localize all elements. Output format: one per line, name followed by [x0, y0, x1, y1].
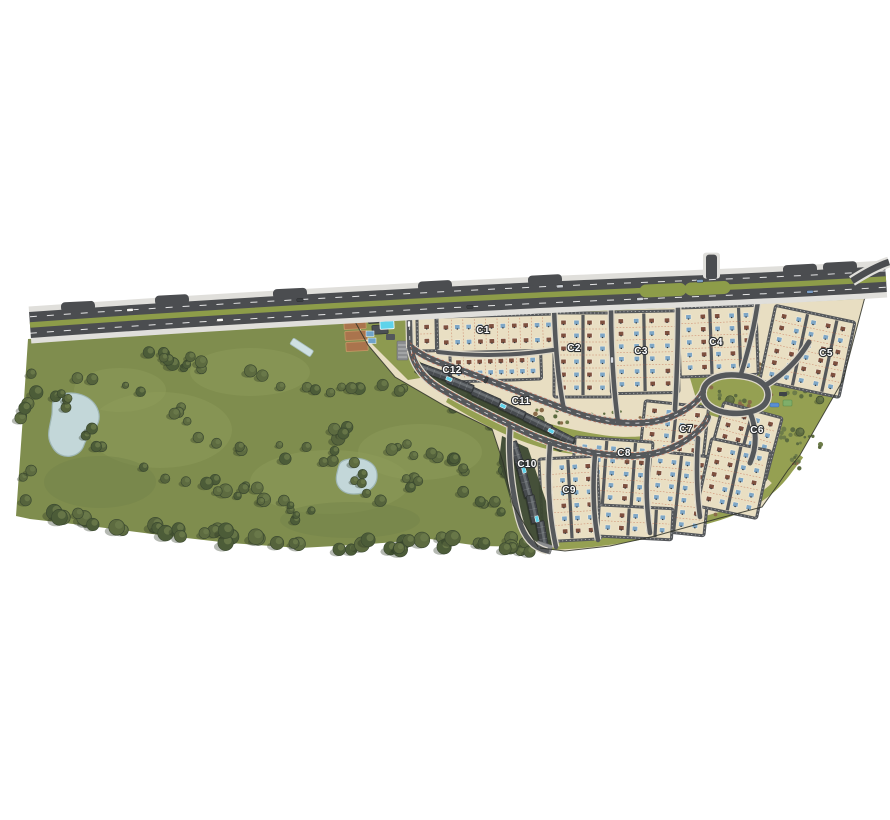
house-door	[589, 376, 590, 377]
house-door	[683, 501, 685, 502]
house-door	[636, 322, 637, 323]
tree-highlight	[60, 390, 64, 394]
layby-bump	[155, 294, 189, 306]
tree-highlight	[296, 512, 299, 515]
tree-highlight	[254, 530, 262, 538]
house-door	[700, 466, 702, 467]
house-door	[589, 337, 590, 338]
shrub	[539, 408, 544, 413]
house-door	[589, 350, 590, 351]
house-door	[634, 530, 635, 531]
shrub	[734, 394, 737, 397]
house-door	[426, 328, 427, 329]
tree-highlight	[249, 366, 255, 372]
house-door	[621, 517, 622, 518]
house-door	[525, 327, 526, 328]
house-door	[589, 324, 590, 325]
tree-highlight	[398, 387, 403, 392]
house-door	[576, 389, 577, 390]
shrub	[553, 414, 557, 418]
cluster-label-c7[interactable]: C7	[679, 424, 693, 435]
cluster-label-c12[interactable]: C12	[442, 365, 461, 376]
tree-highlight	[280, 383, 284, 387]
house-door	[620, 335, 621, 336]
house-door	[468, 363, 469, 364]
tree-highlight	[243, 484, 248, 489]
house-door	[694, 527, 696, 528]
house-door	[689, 356, 690, 357]
house-door	[684, 489, 686, 490]
tree-highlight	[729, 396, 733, 400]
house-door	[576, 494, 577, 495]
tree-highlight	[346, 422, 352, 428]
car	[611, 357, 614, 363]
house-door	[588, 480, 589, 481]
tree-highlight	[338, 544, 344, 550]
house-door	[602, 389, 603, 390]
house-door	[690, 369, 691, 370]
tree-highlight	[451, 532, 459, 540]
house-door	[491, 328, 492, 329]
tree-highlight	[143, 464, 147, 468]
house-door	[621, 360, 622, 361]
house-door	[638, 501, 639, 502]
house-door	[576, 324, 577, 325]
house-door	[590, 519, 591, 520]
house-door	[620, 323, 621, 324]
house-door	[718, 368, 719, 369]
house-door	[704, 368, 705, 369]
house-door	[717, 317, 718, 318]
tree-highlight	[350, 384, 356, 390]
tree-highlight	[406, 441, 410, 445]
house-door	[576, 506, 577, 507]
cluster-label-c5[interactable]: C5	[819, 348, 833, 359]
tree-highlight	[76, 374, 81, 379]
tree-highlight	[453, 454, 458, 459]
house-door	[667, 372, 668, 373]
house-door	[563, 324, 564, 325]
house-door	[621, 386, 622, 387]
house-door	[689, 344, 690, 345]
cluster-label-c11[interactable]: C11	[512, 396, 531, 407]
car	[467, 305, 474, 308]
cluster-label-c1[interactable]: C1	[476, 325, 490, 336]
tree-highlight	[314, 386, 319, 391]
house-door	[514, 342, 515, 343]
tree-highlight	[224, 524, 232, 532]
shrub	[793, 456, 796, 459]
house-door	[635, 517, 636, 518]
grass-patch	[280, 502, 420, 538]
house-door	[602, 363, 603, 364]
house-door	[590, 531, 591, 532]
house-door	[479, 363, 480, 364]
tree-highlight	[35, 387, 42, 394]
house-door	[445, 329, 446, 330]
house-door	[514, 327, 515, 328]
tree-highlight	[260, 498, 264, 502]
house-door	[652, 385, 653, 386]
house-door	[468, 343, 469, 344]
house-door	[746, 329, 747, 330]
tree-highlight	[164, 475, 169, 480]
house-door	[490, 363, 491, 364]
house-door	[561, 469, 562, 470]
tree-highlight	[366, 490, 370, 494]
house-door	[652, 360, 653, 361]
median-island	[691, 288, 724, 290]
house-door	[564, 520, 565, 521]
house-door	[651, 335, 652, 336]
house-door	[687, 465, 689, 466]
shrub	[742, 398, 747, 403]
tree-highlight	[341, 384, 345, 388]
house-door	[667, 385, 668, 386]
shrub	[709, 385, 713, 389]
shrub	[718, 397, 721, 400]
layby-bump	[528, 274, 562, 286]
tree-highlight	[256, 483, 262, 489]
house-door	[667, 334, 668, 335]
tree-highlight	[239, 443, 244, 448]
house-door	[703, 343, 704, 344]
shrub	[799, 442, 802, 445]
layby-bump	[418, 280, 452, 292]
house-door	[532, 361, 533, 362]
mini-court	[783, 400, 792, 406]
tree-highlight	[417, 477, 422, 482]
tree-highlight	[276, 538, 283, 545]
house-door	[576, 363, 577, 364]
tree-highlight	[462, 465, 467, 470]
house-door	[673, 464, 675, 465]
car	[408, 321, 411, 327]
tree-highlight	[331, 456, 337, 462]
shrub	[718, 390, 721, 393]
house-door	[624, 500, 625, 501]
house-door	[667, 347, 668, 348]
sports-court	[345, 330, 367, 340]
amenity-pool	[380, 321, 394, 330]
tree-highlight	[462, 487, 468, 493]
tree-highlight	[293, 539, 298, 544]
tree-highlight	[140, 388, 145, 393]
house-door	[587, 467, 588, 468]
house-door	[639, 488, 640, 489]
house-door	[511, 362, 512, 363]
tree-highlight	[237, 493, 241, 497]
house-door	[732, 355, 733, 356]
tree-highlight	[799, 429, 803, 433]
shrub	[639, 416, 642, 419]
house-door	[672, 476, 674, 477]
block-street	[739, 308, 741, 373]
house-door	[609, 499, 610, 500]
tree-highlight	[279, 442, 282, 445]
house-door	[731, 330, 732, 331]
house-door	[636, 360, 637, 361]
house-door	[621, 348, 622, 349]
block-parcel	[437, 314, 558, 353]
house-door	[661, 531, 662, 532]
house-door	[667, 360, 668, 361]
house-door	[651, 322, 652, 323]
house-door	[680, 526, 682, 527]
housing-block	[437, 314, 558, 353]
tree-highlight	[91, 519, 97, 525]
tree-highlight	[511, 543, 516, 548]
house-door	[665, 437, 667, 438]
house-door	[640, 476, 641, 477]
tree-highlight	[189, 353, 194, 358]
shrub	[797, 466, 801, 470]
house-door	[602, 337, 603, 338]
cluster-label-c10[interactable]: C10	[517, 459, 536, 470]
house-door	[610, 486, 611, 487]
tree-highlight	[261, 371, 267, 377]
shrub	[560, 421, 563, 424]
cluster-label-c4[interactable]: C4	[709, 337, 723, 348]
house-door	[670, 488, 672, 489]
tree-highlight	[367, 534, 374, 541]
tree-highlight	[162, 348, 167, 353]
house-door	[532, 372, 533, 373]
house-door	[562, 482, 563, 483]
house-door	[501, 373, 502, 374]
house-door	[521, 361, 522, 362]
tree-highlight	[91, 375, 97, 381]
tree-highlight	[185, 478, 190, 483]
house-door	[659, 462, 661, 463]
clubhouse-building	[386, 334, 395, 340]
shrub	[799, 394, 803, 398]
shrub	[785, 438, 789, 442]
tree-highlight	[354, 477, 358, 481]
tree-highlight	[500, 508, 504, 512]
car	[637, 297, 644, 300]
housing-block	[417, 317, 437, 351]
tree-highlight	[398, 544, 404, 550]
house-door	[548, 326, 549, 327]
tree-highlight	[483, 539, 489, 545]
house-door	[669, 500, 671, 501]
house-door	[602, 324, 603, 325]
tree-highlight	[173, 409, 179, 415]
tree-highlight	[353, 458, 358, 463]
tree-highlight	[323, 458, 328, 463]
shrub	[533, 412, 538, 417]
house-door	[654, 412, 656, 413]
tree-highlight	[430, 449, 436, 455]
shrub	[603, 412, 605, 414]
tree-highlight	[30, 370, 35, 375]
house-door	[717, 330, 718, 331]
house-door	[685, 477, 687, 478]
house-door	[522, 372, 523, 373]
tree-highlight	[361, 479, 366, 484]
shrub	[714, 513, 718, 517]
cluster-label-c2[interactable]: C2	[567, 343, 581, 354]
house-door	[655, 499, 657, 500]
tree-highlight	[504, 544, 510, 550]
house-door	[588, 493, 589, 494]
house-door	[536, 326, 537, 327]
house-door	[589, 389, 590, 390]
cluster-label-c3[interactable]: C3	[634, 346, 648, 357]
tree-highlight	[77, 509, 82, 514]
ramp-stub	[706, 255, 717, 280]
house-door	[636, 373, 637, 374]
house-door	[602, 350, 603, 351]
shrub	[788, 433, 792, 437]
tree-highlight	[311, 507, 315, 511]
shrub	[780, 431, 784, 435]
tree-highlight	[407, 536, 413, 542]
house-door	[565, 533, 566, 534]
house-door	[666, 322, 667, 323]
house-door	[732, 342, 733, 343]
tree-highlight	[30, 466, 35, 471]
house-door	[745, 316, 746, 317]
shrub	[818, 445, 822, 449]
car	[697, 279, 704, 282]
shrub	[792, 390, 797, 395]
paddle-court	[368, 338, 376, 344]
tree-highlight	[58, 511, 66, 519]
house-door	[468, 328, 469, 329]
house-door	[577, 519, 578, 520]
tree-highlight	[479, 497, 484, 502]
shrub	[779, 435, 783, 439]
shrub	[809, 394, 812, 397]
house-door	[640, 464, 641, 465]
car	[807, 290, 814, 293]
house-door	[624, 487, 625, 488]
tree-highlight	[24, 403, 30, 409]
shrub	[796, 442, 799, 445]
house-door	[637, 385, 638, 386]
car	[127, 308, 134, 311]
house-door	[612, 462, 613, 463]
house-door	[502, 327, 503, 328]
tree-highlight	[125, 383, 128, 386]
house-door	[662, 519, 663, 520]
house-door	[491, 343, 492, 344]
tree-highlight	[95, 442, 100, 447]
house-door	[652, 372, 653, 373]
median-island	[646, 290, 680, 292]
tree-highlight	[115, 521, 123, 529]
tree-highlight	[306, 443, 311, 448]
tree-highlight	[284, 454, 290, 460]
car	[557, 285, 564, 288]
house-door	[563, 350, 564, 351]
tree-highlight	[333, 424, 339, 430]
house-door	[589, 363, 590, 364]
house-door	[563, 337, 564, 338]
tree-highlight	[179, 531, 185, 537]
house-door	[682, 514, 684, 515]
shed	[779, 392, 787, 396]
house-door	[702, 318, 703, 319]
tree-highlight	[306, 383, 311, 388]
tree-highlight	[413, 452, 417, 456]
layby-bump	[783, 264, 817, 276]
cluster-label-c8[interactable]: C8	[617, 448, 631, 459]
house-door	[602, 376, 603, 377]
sports-court	[346, 341, 368, 351]
shrub	[565, 420, 569, 424]
house-door	[457, 328, 458, 329]
layby-bump	[61, 301, 95, 313]
house-door	[667, 425, 669, 426]
tree-highlight	[214, 475, 219, 480]
masterplan-canvas: C1 C2 C3 C4 C5 C6 C7 C8 C9 C10 C11 C12	[0, 0, 890, 820]
house-door	[731, 317, 732, 318]
house-door	[747, 367, 748, 368]
house-door	[589, 506, 590, 507]
tree-highlight	[215, 439, 220, 444]
tree-highlight	[494, 497, 499, 502]
tree-highlight	[819, 397, 823, 401]
house-door	[626, 463, 627, 464]
house-door	[500, 362, 501, 363]
cluster-label-c6[interactable]: C6	[750, 425, 764, 436]
house-door	[688, 331, 689, 332]
house-door	[457, 343, 458, 344]
layby-bump	[273, 288, 307, 300]
house-door	[490, 374, 491, 375]
tree-highlight	[379, 496, 385, 502]
tree-highlight	[391, 445, 397, 451]
shrub	[718, 393, 722, 397]
house-door	[576, 376, 577, 377]
tree-highlight	[67, 395, 71, 399]
tree-highlight	[197, 433, 202, 438]
house-door	[537, 341, 538, 342]
car	[297, 298, 304, 301]
house-door	[608, 516, 609, 517]
cluster-label-c9[interactable]: C9	[562, 485, 576, 496]
bus-icon	[770, 403, 779, 407]
house-door	[611, 474, 612, 475]
tree-highlight	[420, 534, 428, 542]
tree-highlight	[510, 533, 517, 540]
tree-highlight	[334, 447, 339, 452]
housing-block	[697, 438, 770, 518]
grass-patch	[44, 456, 156, 508]
tree-highlight	[217, 487, 222, 492]
tree-highlight	[91, 424, 97, 430]
house-door	[607, 529, 608, 530]
house-door	[480, 343, 481, 344]
tree-highlight	[177, 524, 184, 531]
tree-highlight	[342, 429, 348, 435]
house-door	[625, 475, 626, 476]
house-door	[703, 331, 704, 332]
house-door	[718, 355, 719, 356]
house-door	[688, 318, 689, 319]
tree-highlight	[24, 496, 30, 502]
house-door	[733, 367, 734, 368]
house-door	[563, 363, 564, 364]
house-door	[563, 376, 564, 377]
house-door	[446, 344, 447, 345]
tree-highlight	[405, 475, 409, 479]
tree-highlight	[163, 354, 167, 358]
shrub	[738, 401, 742, 405]
